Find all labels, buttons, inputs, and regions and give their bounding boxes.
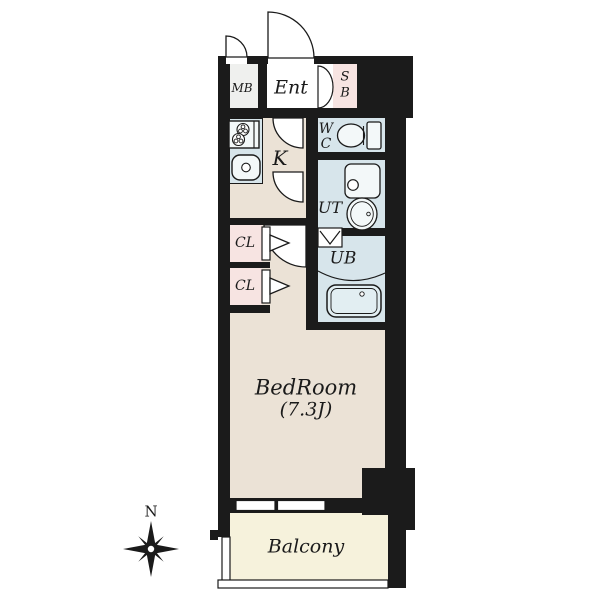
kitchen-door-swing-icon	[273, 118, 303, 148]
unit-bath-label: UB	[330, 251, 357, 268]
entrance-door-swing-icon	[268, 12, 314, 58]
mb-door-swing-icon	[226, 36, 247, 57]
bedroom-label: BedRoom	[255, 378, 357, 399]
closet-2-fold-arrow-icon	[270, 278, 289, 294]
closet-2-door-panel	[262, 270, 270, 303]
entrance-label: Ent	[274, 79, 308, 98]
closet-1-label: CL	[235, 236, 255, 250]
compass-north-label: N	[144, 505, 157, 520]
window-icon	[236, 501, 325, 511]
washing-machine-icon	[345, 164, 380, 198]
kitchen-sink-icon	[232, 155, 260, 180]
utility-label: UT	[318, 200, 342, 216]
utility-sink-icon	[347, 198, 377, 230]
closet-1-door-panel	[262, 227, 270, 260]
toilet-icon	[338, 122, 382, 149]
toilet-label-w: W	[319, 122, 333, 136]
toilet-label-c: C	[321, 137, 332, 151]
bedroom-size-label: (7.3J)	[280, 401, 333, 420]
meter-box-label: MB	[231, 82, 252, 94]
shoe-box-label-s: S	[341, 71, 350, 84]
balcony-bottom-rail	[218, 580, 388, 588]
shoe-box-label-b: B	[340, 87, 350, 100]
hall-door-swing-icon	[273, 172, 303, 202]
floor-plan: MB Ent S B K W C UT UB CL CL BedRoom (7.…	[0, 0, 600, 600]
kitchen-label: K	[273, 148, 288, 168]
balcony-left-rail	[222, 537, 230, 582]
closet-2-label: CL	[235, 279, 255, 293]
shoe-box-doors-icon	[318, 66, 333, 108]
balcony-label: Balcony	[268, 538, 344, 557]
bathtub-icon	[327, 285, 381, 317]
compass-north-icon	[123, 521, 179, 577]
bath-step-curve	[318, 271, 385, 281]
stove-icon	[229, 121, 259, 148]
